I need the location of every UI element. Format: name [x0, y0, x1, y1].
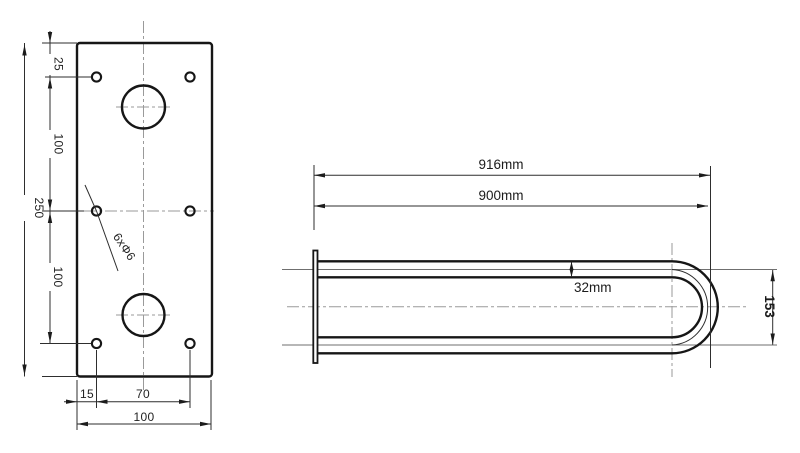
- front-view-mounting-plate: 250 25 100 100 15 70 100 6xΦ6: [22, 21, 214, 430]
- dim-text-plate-width: 100: [134, 410, 155, 424]
- holes-leader-line: [85, 185, 118, 271]
- mounting-hole: [185, 72, 194, 81]
- dim-text-edge-offset: 15: [80, 387, 94, 401]
- technical-drawing-canvas: 250 25 100 100 15 70 100 6xΦ6: [0, 0, 800, 453]
- holes-note-text: 6xΦ6: [110, 230, 138, 263]
- front-view-arrowheads: [22, 32, 211, 426]
- dim-text-upper-spacing: 100: [52, 134, 66, 155]
- mounting-hole: [185, 339, 194, 348]
- side-view-grab-bar: 916mm 900mm 32mm 153: [282, 157, 777, 377]
- extension-lines-left: [40, 43, 91, 377]
- dim-text-lower-spacing: 100: [51, 267, 65, 288]
- dim-text-end-height: 153: [762, 295, 777, 318]
- dim-text-bar-length: 900mm: [478, 188, 523, 203]
- mounting-hole: [92, 72, 101, 81]
- mounting-hole: [92, 339, 101, 348]
- dim-text-hole-span: 70: [136, 387, 150, 401]
- dim-text-top-offset: 25: [52, 57, 66, 71]
- dim-text-overall-height: 250: [32, 198, 46, 219]
- grab-bar-drawing: 250 25 100 100 15 70 100 6xΦ6: [0, 0, 800, 453]
- plate-outline: [77, 43, 212, 377]
- dim-text-tube-diameter: 32mm: [574, 280, 612, 295]
- wall-plate-edge: [313, 251, 317, 364]
- dim-text-overall-length: 916mm: [478, 157, 523, 172]
